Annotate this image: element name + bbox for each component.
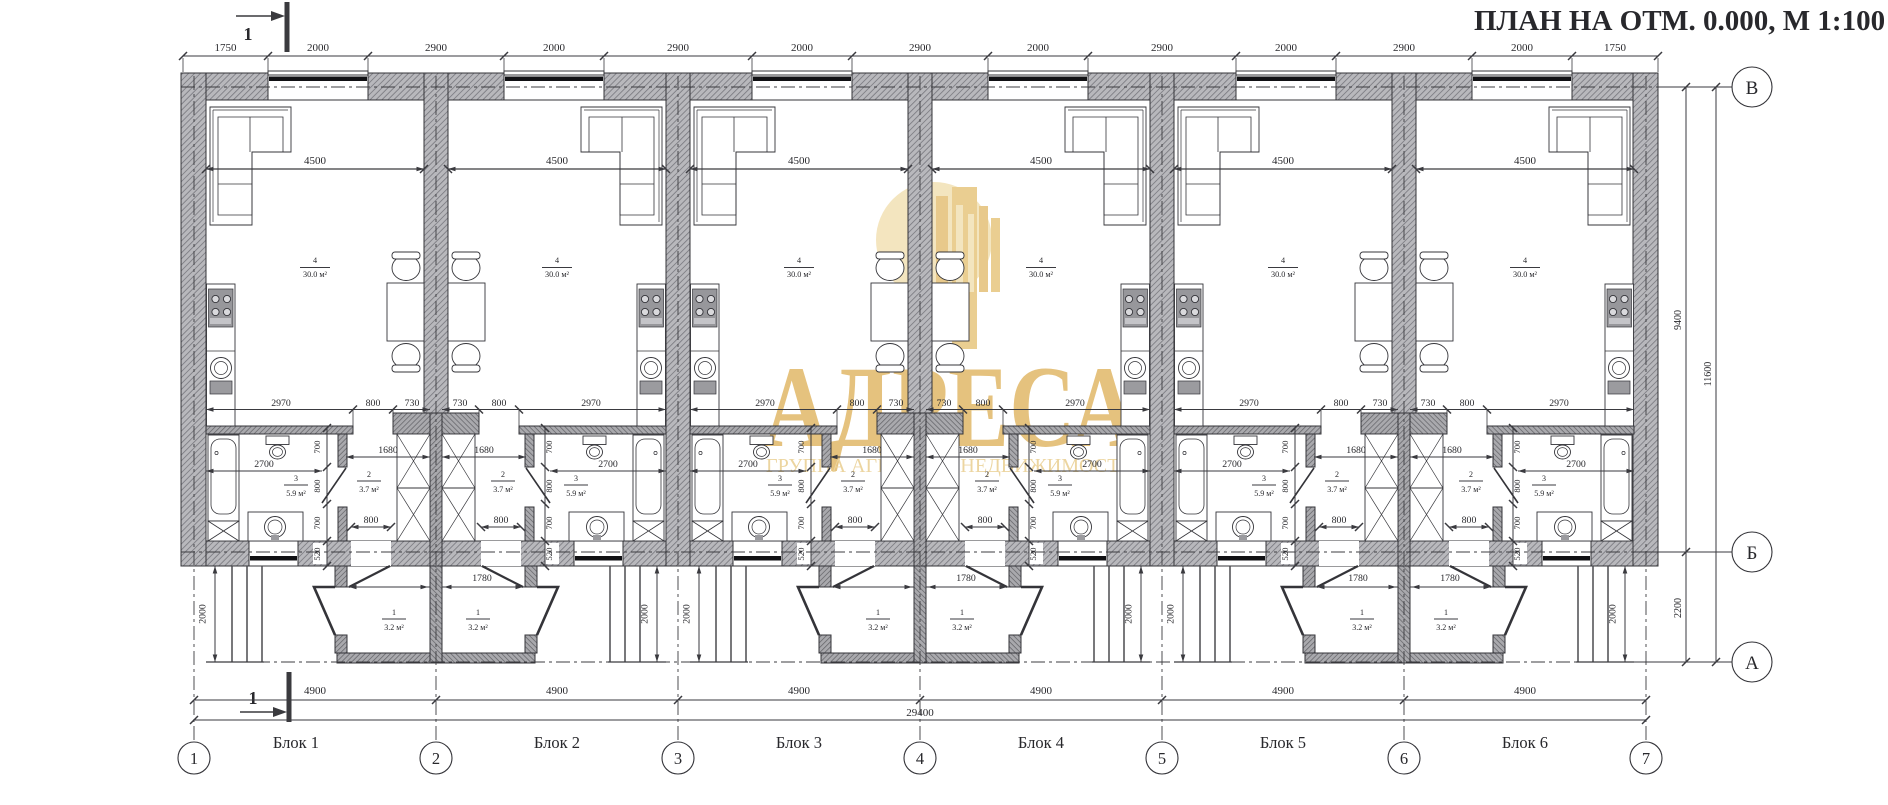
svg-text:1680: 1680 bbox=[1442, 445, 1462, 456]
svg-text:4900: 4900 bbox=[788, 685, 811, 697]
svg-text:3.7 м²: 3.7 м² bbox=[977, 485, 997, 494]
svg-text:3: 3 bbox=[1058, 474, 1062, 483]
svg-text:3.2 м²: 3.2 м² bbox=[868, 623, 888, 632]
svg-text:3.7 м²: 3.7 м² bbox=[1327, 485, 1347, 494]
svg-text:30.0 м²: 30.0 м² bbox=[1029, 270, 1054, 279]
svg-text:700: 700 bbox=[796, 516, 806, 530]
svg-text:2900: 2900 bbox=[425, 42, 448, 54]
svg-text:30.0 м²: 30.0 м² bbox=[1513, 270, 1538, 279]
svg-text:3: 3 bbox=[674, 749, 682, 768]
svg-text:730: 730 bbox=[937, 398, 952, 409]
svg-text:5.9 м²: 5.9 м² bbox=[1050, 489, 1070, 498]
svg-text:800: 800 bbox=[978, 515, 993, 526]
svg-text:Блок 2: Блок 2 bbox=[534, 733, 580, 752]
svg-text:800: 800 bbox=[544, 479, 554, 493]
svg-text:2000: 2000 bbox=[791, 42, 814, 54]
svg-text:3.7 м²: 3.7 м² bbox=[843, 485, 863, 494]
svg-text:2000: 2000 bbox=[198, 604, 209, 624]
svg-text:В: В bbox=[1746, 78, 1759, 99]
svg-text:1680: 1680 bbox=[958, 445, 978, 456]
svg-text:700: 700 bbox=[1512, 440, 1522, 454]
svg-text:800: 800 bbox=[976, 398, 991, 409]
svg-text:4500: 4500 bbox=[1272, 155, 1295, 167]
svg-text:5: 5 bbox=[1158, 749, 1166, 768]
svg-text:2: 2 bbox=[367, 470, 371, 479]
svg-text:800: 800 bbox=[494, 515, 509, 526]
svg-text:2000: 2000 bbox=[1166, 604, 1177, 624]
svg-text:2700: 2700 bbox=[598, 459, 618, 470]
svg-text:2000: 2000 bbox=[1275, 42, 1298, 54]
svg-text:5.9 м²: 5.9 м² bbox=[1534, 489, 1554, 498]
svg-text:2: 2 bbox=[851, 470, 855, 479]
svg-text:5.9 м²: 5.9 м² bbox=[770, 489, 790, 498]
svg-text:4500: 4500 bbox=[1514, 155, 1537, 167]
svg-text:1: 1 bbox=[249, 688, 258, 708]
svg-text:ПЛАН НА ОТМ. 0.000, М 1:100: ПЛАН НА ОТМ. 0.000, М 1:100 bbox=[1474, 5, 1885, 37]
svg-text:2000: 2000 bbox=[543, 42, 566, 54]
svg-text:700: 700 bbox=[544, 516, 554, 530]
svg-text:4900: 4900 bbox=[304, 685, 327, 697]
svg-text:1: 1 bbox=[476, 608, 480, 617]
svg-text:11600: 11600 bbox=[1703, 362, 1714, 387]
svg-text:3.7 м²: 3.7 м² bbox=[359, 485, 379, 494]
svg-text:2: 2 bbox=[985, 470, 989, 479]
svg-text:800: 800 bbox=[1334, 398, 1349, 409]
svg-text:6: 6 bbox=[1400, 749, 1408, 768]
svg-text:730: 730 bbox=[1373, 398, 1388, 409]
svg-text:3.2 м²: 3.2 м² bbox=[1352, 623, 1372, 632]
svg-text:800: 800 bbox=[1332, 515, 1347, 526]
svg-text:520: 520 bbox=[544, 547, 554, 561]
svg-text:730: 730 bbox=[889, 398, 904, 409]
svg-text:5.9 м²: 5.9 м² bbox=[566, 489, 586, 498]
svg-text:1: 1 bbox=[244, 24, 253, 44]
svg-text:4: 4 bbox=[1039, 256, 1043, 265]
svg-text:800: 800 bbox=[312, 479, 322, 493]
svg-text:1: 1 bbox=[960, 608, 964, 617]
svg-text:4500: 4500 bbox=[546, 155, 569, 167]
svg-text:2: 2 bbox=[1469, 470, 1473, 479]
svg-text:730: 730 bbox=[453, 398, 468, 409]
svg-text:800: 800 bbox=[364, 515, 379, 526]
svg-text:2700: 2700 bbox=[1222, 459, 1242, 470]
svg-text:Б: Б bbox=[1747, 543, 1758, 564]
svg-text:2200: 2200 bbox=[1673, 598, 1684, 618]
svg-text:800: 800 bbox=[1512, 479, 1522, 493]
svg-text:3.2 м²: 3.2 м² bbox=[468, 623, 488, 632]
svg-text:4900: 4900 bbox=[546, 685, 569, 697]
svg-text:1: 1 bbox=[1360, 608, 1364, 617]
svg-text:2970: 2970 bbox=[1065, 398, 1085, 409]
svg-text:4: 4 bbox=[313, 256, 317, 265]
svg-text:Блок 6: Блок 6 bbox=[1502, 733, 1548, 752]
svg-text:3: 3 bbox=[778, 474, 782, 483]
svg-text:1780: 1780 bbox=[1440, 573, 1460, 584]
svg-text:2970: 2970 bbox=[271, 398, 291, 409]
svg-text:520: 520 bbox=[312, 547, 322, 561]
svg-text:29400: 29400 bbox=[906, 707, 934, 719]
svg-text:4: 4 bbox=[1281, 256, 1285, 265]
svg-text:3.7 м²: 3.7 м² bbox=[493, 485, 513, 494]
svg-text:4900: 4900 bbox=[1514, 685, 1537, 697]
svg-text:700: 700 bbox=[1280, 516, 1290, 530]
svg-text:2000: 2000 bbox=[1608, 604, 1619, 624]
svg-text:30.0 м²: 30.0 м² bbox=[545, 270, 570, 279]
svg-text:9400: 9400 bbox=[1673, 310, 1684, 330]
svg-text:4500: 4500 bbox=[304, 155, 327, 167]
svg-text:800: 800 bbox=[492, 398, 507, 409]
svg-text:800: 800 bbox=[1280, 479, 1290, 493]
svg-text:520: 520 bbox=[1512, 547, 1522, 561]
svg-text:1750: 1750 bbox=[215, 42, 238, 54]
svg-text:700: 700 bbox=[796, 440, 806, 454]
svg-text:730: 730 bbox=[1421, 398, 1436, 409]
svg-text:2: 2 bbox=[432, 749, 440, 768]
svg-text:5.9 м²: 5.9 м² bbox=[286, 489, 306, 498]
svg-text:1: 1 bbox=[190, 749, 198, 768]
svg-text:2970: 2970 bbox=[1549, 398, 1569, 409]
svg-text:700: 700 bbox=[1280, 440, 1290, 454]
svg-text:1680: 1680 bbox=[1346, 445, 1366, 456]
svg-text:2000: 2000 bbox=[307, 42, 330, 54]
svg-text:Блок 5: Блок 5 bbox=[1260, 733, 1306, 752]
svg-text:2000: 2000 bbox=[1511, 42, 1534, 54]
svg-text:700: 700 bbox=[312, 516, 322, 530]
svg-text:Блок 4: Блок 4 bbox=[1018, 733, 1064, 752]
svg-text:3: 3 bbox=[1262, 474, 1266, 483]
svg-text:3.2 м²: 3.2 м² bbox=[384, 623, 404, 632]
svg-text:3.2 м²: 3.2 м² bbox=[952, 623, 972, 632]
svg-text:30.0 м²: 30.0 м² bbox=[787, 270, 812, 279]
svg-text:3: 3 bbox=[574, 474, 578, 483]
svg-text:4: 4 bbox=[916, 749, 924, 768]
svg-text:730: 730 bbox=[405, 398, 420, 409]
svg-text:700: 700 bbox=[312, 440, 322, 454]
svg-text:2900: 2900 bbox=[1393, 42, 1416, 54]
svg-text:30.0 м²: 30.0 м² bbox=[303, 270, 328, 279]
svg-text:700: 700 bbox=[544, 440, 554, 454]
svg-text:2000: 2000 bbox=[640, 604, 651, 624]
svg-text:3.2 м²: 3.2 м² bbox=[1436, 623, 1456, 632]
svg-text:2970: 2970 bbox=[1239, 398, 1259, 409]
svg-text:800: 800 bbox=[1462, 515, 1477, 526]
svg-text:1: 1 bbox=[876, 608, 880, 617]
svg-text:2: 2 bbox=[501, 470, 505, 479]
svg-text:800: 800 bbox=[796, 479, 806, 493]
svg-text:520: 520 bbox=[796, 547, 806, 561]
svg-text:2700: 2700 bbox=[1566, 459, 1586, 470]
svg-text:2970: 2970 bbox=[755, 398, 775, 409]
svg-text:4: 4 bbox=[555, 256, 559, 265]
svg-text:2970: 2970 bbox=[581, 398, 601, 409]
svg-text:7: 7 bbox=[1642, 749, 1650, 768]
svg-text:2900: 2900 bbox=[909, 42, 932, 54]
svg-text:Блок 3: Блок 3 bbox=[776, 733, 822, 752]
svg-text:2700: 2700 bbox=[254, 459, 274, 470]
svg-text:5.9 м²: 5.9 м² bbox=[1254, 489, 1274, 498]
svg-text:1750: 1750 bbox=[1604, 42, 1627, 54]
svg-text:Блок 1: Блок 1 bbox=[273, 733, 319, 752]
svg-text:4500: 4500 bbox=[1030, 155, 1053, 167]
svg-text:800: 800 bbox=[848, 515, 863, 526]
svg-text:2000: 2000 bbox=[1124, 604, 1135, 624]
svg-text:1: 1 bbox=[1444, 608, 1448, 617]
svg-text:4500: 4500 bbox=[788, 155, 811, 167]
svg-text:520: 520 bbox=[1280, 547, 1290, 561]
svg-text:3.7 м²: 3.7 м² bbox=[1461, 485, 1481, 494]
svg-text:1680: 1680 bbox=[862, 445, 882, 456]
svg-text:1780: 1780 bbox=[956, 573, 976, 584]
svg-text:4900: 4900 bbox=[1272, 685, 1295, 697]
svg-text:1680: 1680 bbox=[378, 445, 398, 456]
svg-text:1780: 1780 bbox=[472, 573, 492, 584]
svg-text:2900: 2900 bbox=[1151, 42, 1174, 54]
svg-text:А: А bbox=[1745, 653, 1759, 674]
svg-text:700: 700 bbox=[1028, 440, 1038, 454]
svg-text:1: 1 bbox=[392, 608, 396, 617]
svg-text:2000: 2000 bbox=[682, 604, 693, 624]
svg-text:520: 520 bbox=[1028, 547, 1038, 561]
svg-text:30.0 м²: 30.0 м² bbox=[1271, 270, 1296, 279]
svg-text:700: 700 bbox=[1028, 516, 1038, 530]
svg-text:800: 800 bbox=[366, 398, 381, 409]
svg-text:3: 3 bbox=[1542, 474, 1546, 483]
svg-text:2700: 2700 bbox=[738, 459, 758, 470]
svg-text:3: 3 bbox=[294, 474, 298, 483]
svg-text:1680: 1680 bbox=[474, 445, 494, 456]
svg-text:2700: 2700 bbox=[1082, 459, 1102, 470]
svg-text:2000: 2000 bbox=[1027, 42, 1050, 54]
svg-text:700: 700 bbox=[1512, 516, 1522, 530]
svg-text:2: 2 bbox=[1335, 470, 1339, 479]
svg-text:4900: 4900 bbox=[1030, 685, 1053, 697]
svg-text:2900: 2900 bbox=[667, 42, 690, 54]
svg-text:1780: 1780 bbox=[1348, 573, 1368, 584]
svg-text:800: 800 bbox=[850, 398, 865, 409]
svg-text:800: 800 bbox=[1028, 479, 1038, 493]
svg-text:4: 4 bbox=[797, 256, 801, 265]
svg-text:4: 4 bbox=[1523, 256, 1527, 265]
svg-text:800: 800 bbox=[1460, 398, 1475, 409]
